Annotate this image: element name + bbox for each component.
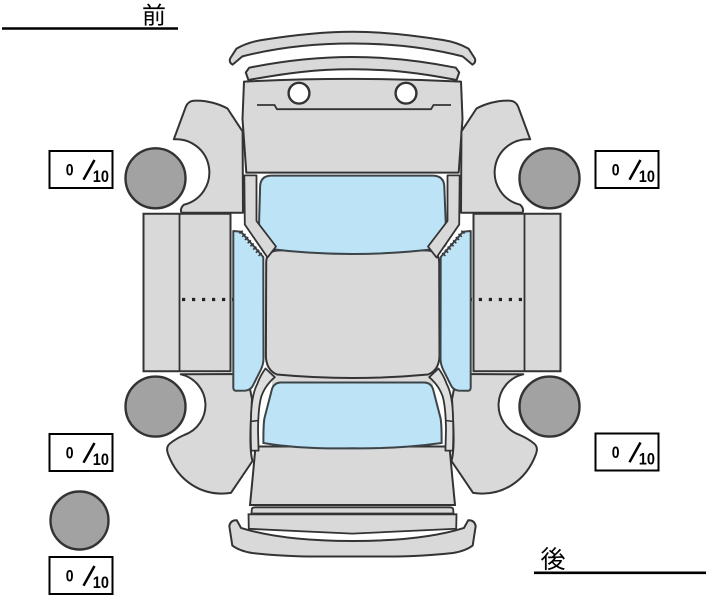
- svg-text:0: 0: [66, 161, 74, 180]
- svg-text:10: 10: [93, 167, 109, 186]
